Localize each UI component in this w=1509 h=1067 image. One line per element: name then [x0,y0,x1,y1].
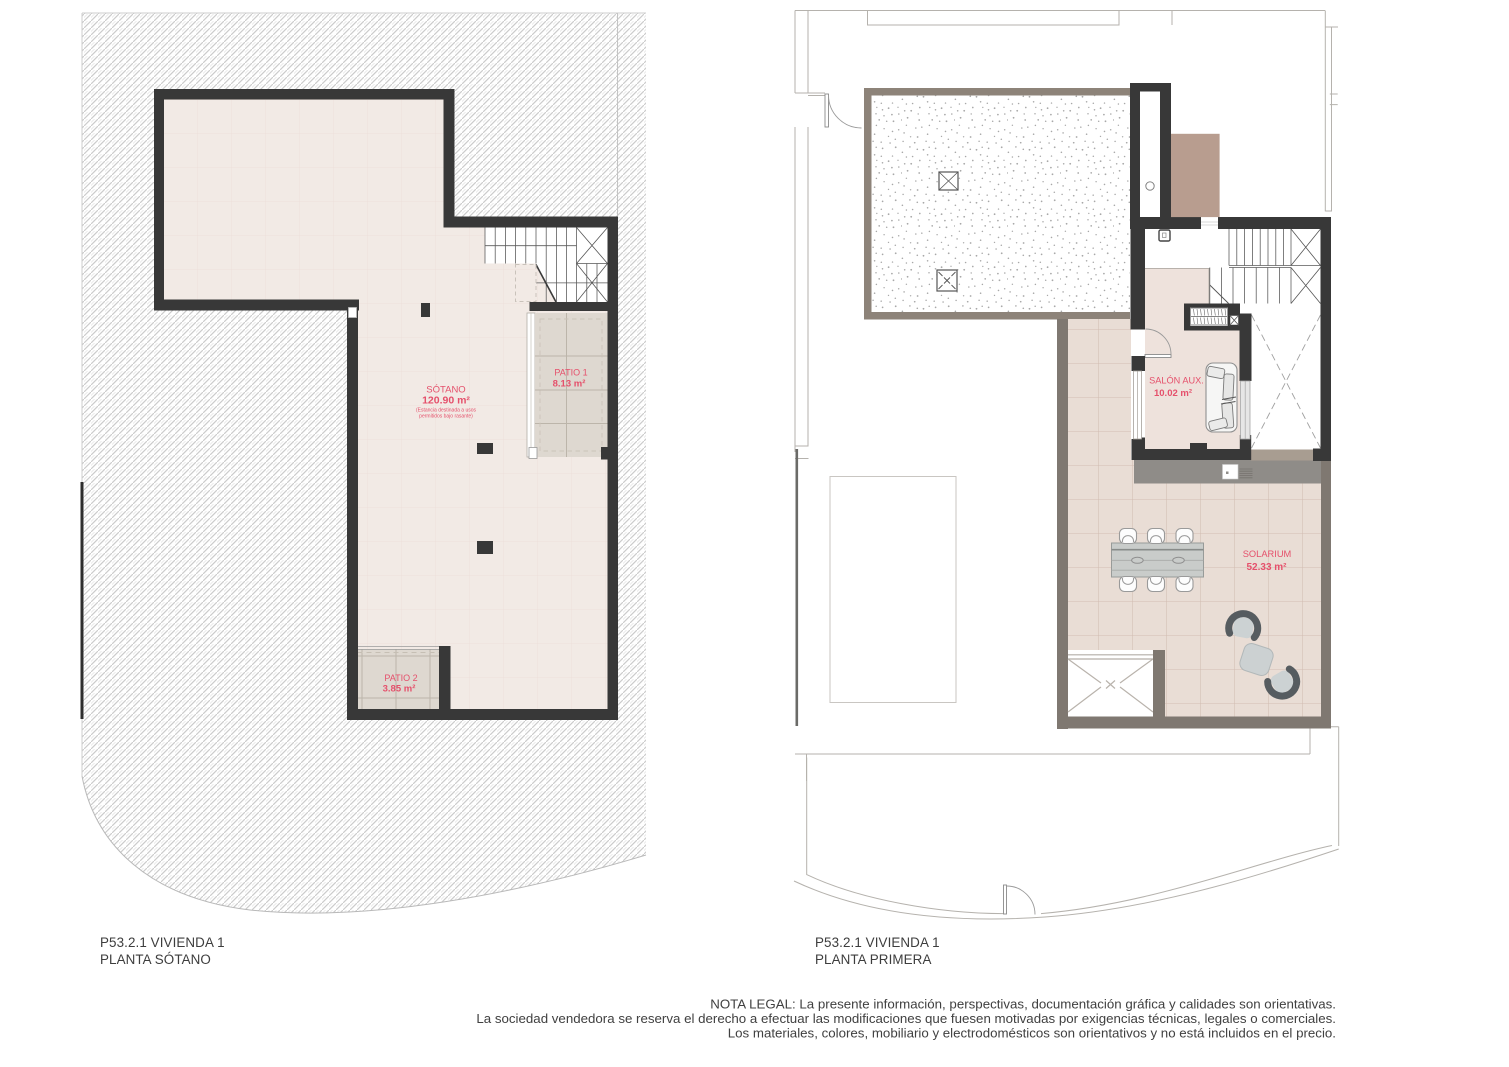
svg-text:PATIO 1: PATIO 1 [554,368,587,378]
svg-text:10.02 m²: 10.02 m² [1154,388,1192,399]
svg-text:permitidos bajo rasante): permitidos bajo rasante) [419,414,473,420]
svg-text:52.33 m²: 52.33 m² [1246,562,1287,573]
svg-text:8.13 m²: 8.13 m² [553,379,586,390]
svg-text:SALÓN AUX.: SALÓN AUX. [1149,376,1204,386]
svg-text:P53.2.1 VIVIENDA 1: P53.2.1 VIVIENDA 1 [100,935,225,950]
svg-text:NOTA LEGAL: La presente inform: NOTA LEGAL: La presente información, per… [710,997,1336,1012]
svg-text:PLANTA SÓTANO: PLANTA SÓTANO [100,952,211,967]
svg-text:PLANTA PRIMERA: PLANTA PRIMERA [815,952,932,967]
svg-text:120.90 m²: 120.90 m² [422,395,470,407]
svg-text:SOLARIUM: SOLARIUM [1243,549,1292,559]
svg-text:P53.2.1 VIVIENDA 1: P53.2.1 VIVIENDA 1 [815,935,940,950]
svg-text:3.85 m²: 3.85 m² [383,684,416,695]
svg-text:La sociedad vendedora se reser: La sociedad vendedora se reserva el dere… [476,1011,1336,1026]
svg-text:Los materiales, colores, mobil: Los materiales, colores, mobiliario y el… [728,1026,1336,1041]
svg-text:PATIO 2: PATIO 2 [384,673,417,683]
